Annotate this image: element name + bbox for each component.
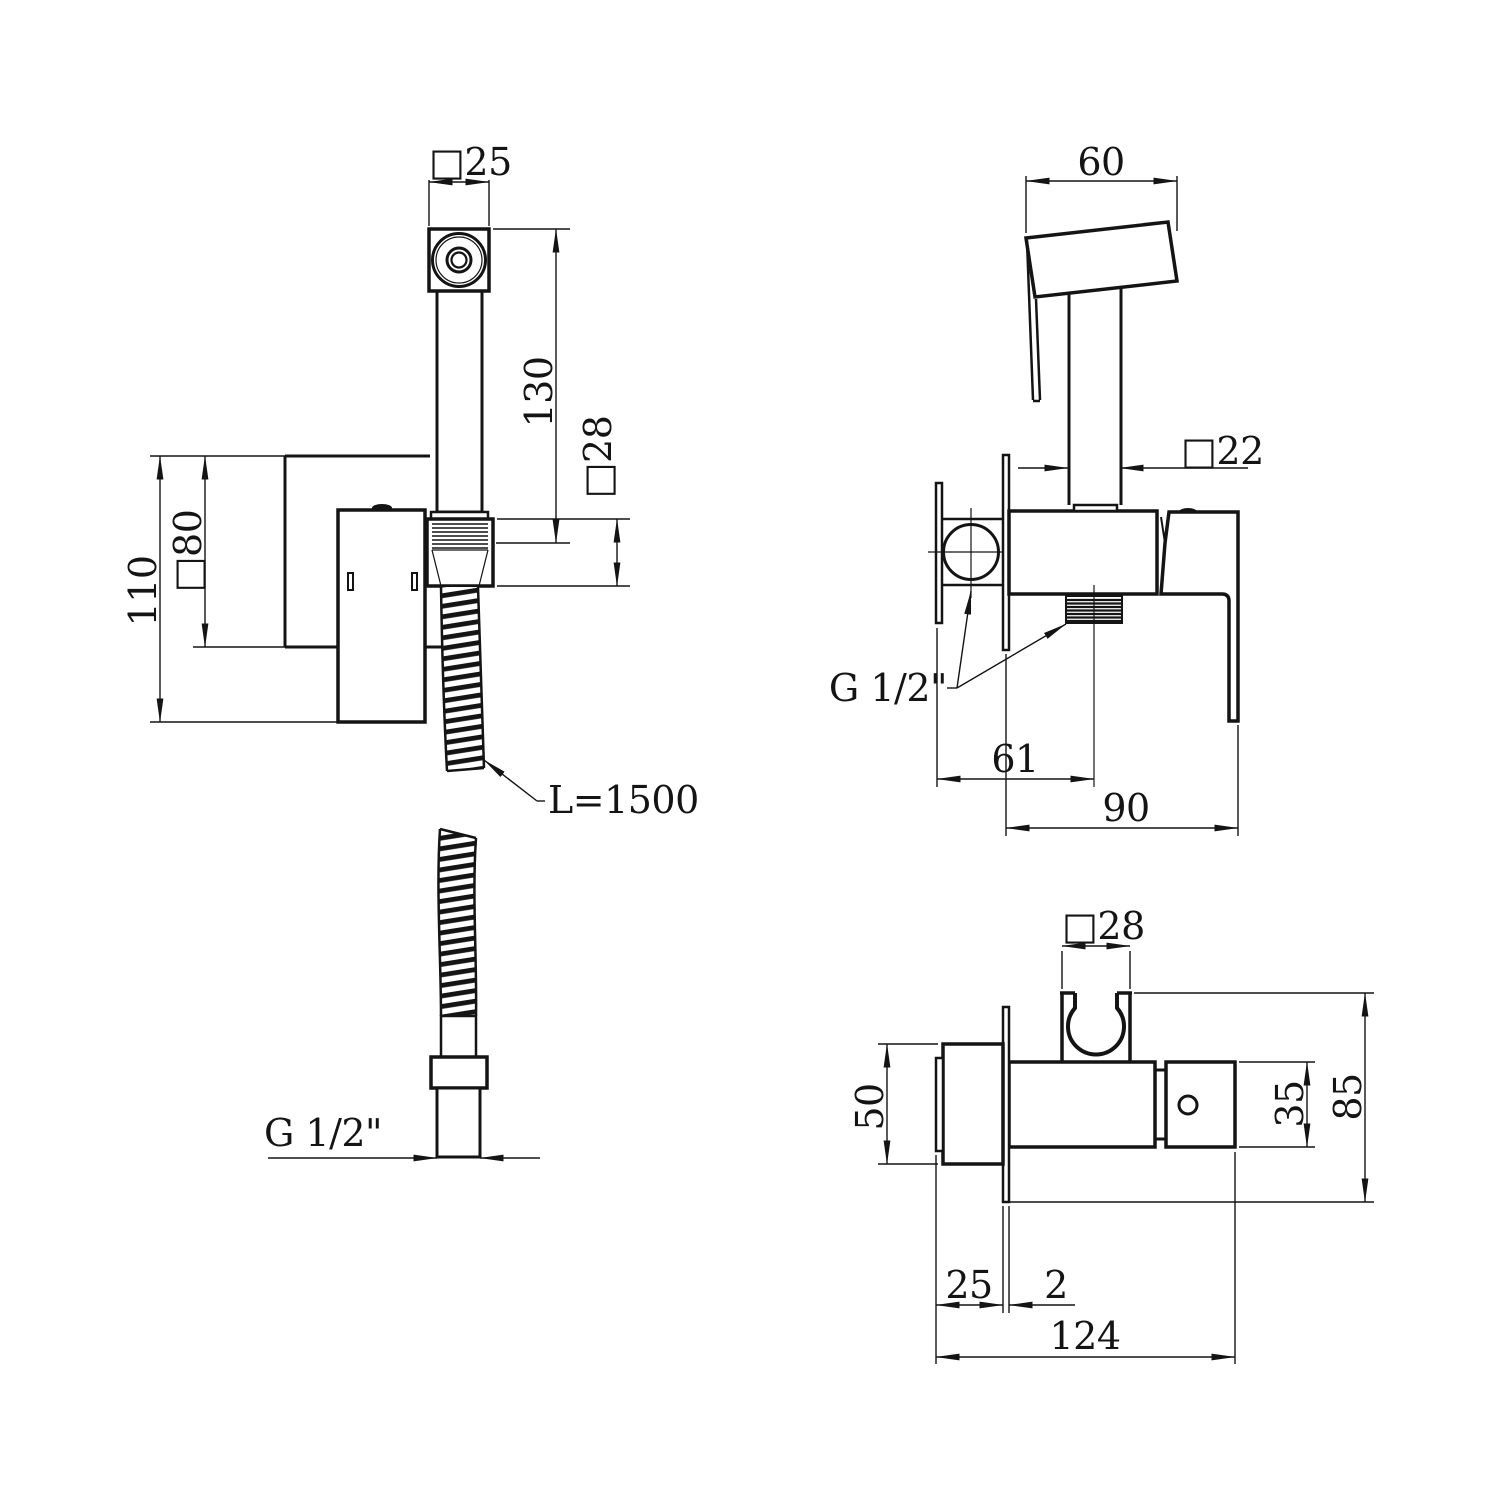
shower-hose-front [431,587,487,1157]
hose-neck [441,1016,476,1057]
escutcheon-cap [936,1058,943,1151]
dim-shaft-size: □22 [1018,429,1264,473]
dim-label-lever-height: 35 [1268,1080,1312,1127]
body-slot-left [348,573,353,590]
dim-plate-thickness: 2 [1009,1263,1075,1307]
dim-label-head-depth: 60 [1077,140,1124,184]
handle-shaft [437,291,482,512]
hand-shower-front [427,229,493,586]
dim-label-plate-size: □80 [166,510,210,593]
dim-body-depth: 90 [1006,654,1238,836]
dim-escutcheon-height: 50 [848,1044,938,1164]
technical-drawing-page: □25 130 □28 □80 110 L=15 [0,0,1500,1500]
side-view: 60 □22 G 1/2" 61 90 [829,140,1264,836]
dim-label-holder-size: □28 [1062,904,1145,948]
dim-lever-height: 35 [1239,1062,1315,1147]
holder-clip [1060,993,1132,1062]
dim-label-overall-depth-top: 124 [1049,1314,1120,1358]
dim-holder-size: □28 [1062,904,1145,989]
back-plate-edge [936,483,942,623]
body-slot-right [412,573,417,590]
lever-end-top [1166,1062,1235,1147]
dim-connector-size: □28 [497,416,630,586]
dim-label-overall-height-top: 85 [1326,1073,1370,1120]
dim-label-hose-thread: G 1/2" [264,1111,382,1155]
dim-hose-length: L=1500 [484,760,699,822]
dim-label-escutcheon-depth: 25 [945,1263,992,1307]
dim-head-depth: 60 [1026,140,1177,233]
dim-label-connector-size: □28 [576,416,620,499]
drawing-canvas: □25 130 □28 □80 110 L=15 [0,0,1500,1500]
dim-plate-size: □80 [150,456,285,647]
mixer-body-front [338,504,425,722]
dim-label-thread-side: G 1/2" [829,666,947,710]
spray-head [429,229,489,291]
wall-plates-side [928,455,1014,650]
lever-handle-side [1161,512,1238,721]
dim-label-outlet-offset: 61 [991,737,1038,781]
dim-escutcheon-depth: 25 [936,1155,1009,1364]
dim-overall-height: 110 [121,456,338,722]
dim-overall-depth-top: 124 [936,1152,1235,1364]
hose-lower-segment [438,829,476,1016]
front-view: □25 130 □28 □80 110 L=15 [121,140,699,1158]
dim-handle-length: 130 [493,229,570,543]
dim-label-handle-length: 130 [517,356,561,427]
dim-hose-thread: G 1/2" [264,1111,540,1158]
dim-thread-side: G 1/2" [829,591,1066,710]
hose-end-fitting [437,1088,480,1157]
shaft-collar-side [1074,505,1117,511]
dim-label-shaft-size: □22 [1181,429,1264,473]
hose-upper-segment [441,587,484,771]
spray-head-side [1026,222,1177,297]
dim-label-escutcheon-height: 50 [848,1083,892,1130]
hose-nut [431,1057,487,1088]
dim-outlet-offset: 61 [937,628,1094,787]
dim-label-body-depth: 90 [1102,786,1149,830]
hose-connector [427,519,493,586]
escutcheon-top [943,1044,1003,1164]
dim-head-width: □25 [429,140,512,226]
dim-label-head-width: □25 [429,140,512,184]
dim-label-overall-height: 110 [121,555,165,626]
top-view: □28 50 35 85 25 2 [848,904,1374,1364]
dim-label-plate-thickness: 2 [1044,1263,1068,1307]
dim-label-hose-length: L=1500 [548,778,699,822]
